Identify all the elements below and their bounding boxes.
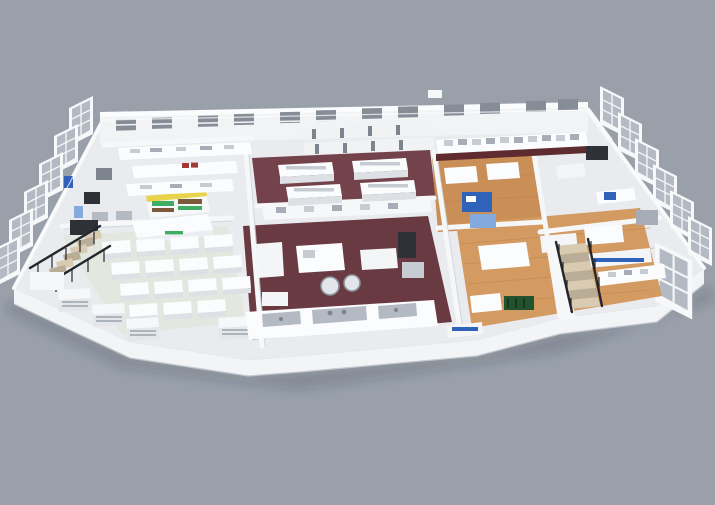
interior-window-icon [116, 211, 132, 220]
desk [213, 255, 242, 274]
under-stair-cabinet [30, 272, 64, 290]
reactor-vessel [321, 277, 339, 295]
desk [111, 261, 140, 280]
desk [154, 280, 183, 299]
desk [222, 276, 251, 295]
island-bench [352, 158, 408, 180]
white-box [470, 293, 502, 313]
cabinet [92, 303, 125, 327]
gray-equipment [636, 210, 658, 225]
wall-sign [74, 206, 83, 218]
desk [145, 259, 174, 278]
island-bench [278, 162, 334, 184]
desk [163, 301, 192, 320]
work-table [444, 166, 478, 184]
equipment-gray [402, 262, 424, 278]
blue-stripe [452, 327, 478, 331]
desk [179, 257, 208, 276]
roof-vent [428, 90, 442, 98]
red-binders [182, 163, 189, 168]
wall-cabinet [96, 168, 112, 180]
desk [170, 236, 199, 255]
cabinet [58, 288, 91, 312]
desk [197, 299, 226, 318]
island-bench [286, 184, 342, 206]
side-bench [262, 292, 288, 306]
blue-analyzer [604, 192, 616, 200]
machine [584, 225, 624, 245]
desk [120, 282, 149, 301]
process-unit [360, 248, 398, 270]
work-table [486, 162, 520, 180]
facility-3d-render [0, 0, 715, 505]
blue-machine [470, 214, 496, 228]
island-bench [360, 180, 416, 202]
desk [136, 238, 165, 257]
desk [188, 278, 217, 297]
fume-hood-dark [398, 232, 416, 258]
interior-window-icon [92, 212, 108, 221]
desk [204, 234, 233, 253]
cabinet [218, 316, 251, 340]
wall-cabinet [84, 192, 100, 204]
reactor-vessel [344, 275, 360, 291]
tall-cabinet [256, 242, 284, 278]
red-binders [191, 163, 198, 168]
reception-logo [165, 231, 183, 234]
robot-arm-unit [586, 146, 608, 160]
blue-stripe [592, 258, 644, 262]
isometric-floorplan-svg [0, 0, 715, 505]
cabinet [126, 317, 159, 341]
big-table [478, 242, 530, 270]
